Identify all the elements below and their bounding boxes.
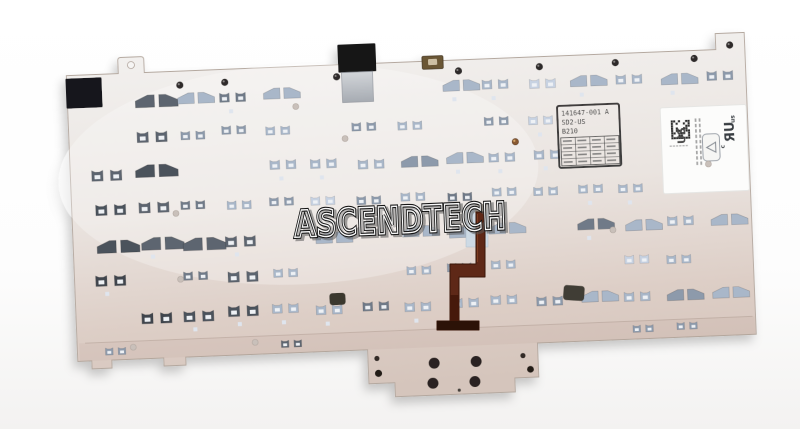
watermark: ASCENDTECH ASCENDTECH ASCENDTECH: [293, 195, 509, 249]
keyboard-backplate-photo: 141647-001 A SD2-US B210 US ЯU c us: [0, 0, 800, 429]
embossed-dot: [293, 103, 299, 109]
svg-text:ЯU: ЯU: [723, 121, 739, 142]
embossed-dot: [177, 276, 183, 282]
black-tape-center: [337, 43, 376, 73]
metal-strip: [341, 71, 373, 102]
product-photo: 141647-001 A SD2-US B210 US ЯU c us: [0, 0, 800, 429]
embossed-dot: [173, 210, 179, 216]
stamp-line2: SD2-US: [561, 118, 585, 127]
rubber-dome-dark: [563, 285, 585, 301]
mount-tab-hole: [127, 61, 134, 68]
svg-text:us: us: [729, 115, 736, 124]
watermark-inner: ASCENDTECH: [293, 195, 507, 246]
embossed-dot: [130, 344, 136, 350]
regulatory-sticker: US ЯU c us: [660, 104, 749, 193]
cable-shade: [450, 295, 459, 321]
stamp-line3: B210: [562, 127, 578, 136]
rubber-dome-dark: [329, 293, 345, 306]
embossed-dot: [705, 161, 711, 167]
sticker-region-text: US: [675, 127, 689, 144]
copper-rivet: [512, 138, 519, 145]
triangle-stamp-icon: [702, 134, 720, 162]
bronze-clip: [422, 56, 444, 70]
black-tape-left: [65, 77, 102, 108]
embossed-dot: [252, 339, 258, 345]
embossed-dot: [342, 135, 348, 141]
cable-end-bar: [437, 321, 479, 330]
embossed-dot: [610, 227, 616, 233]
